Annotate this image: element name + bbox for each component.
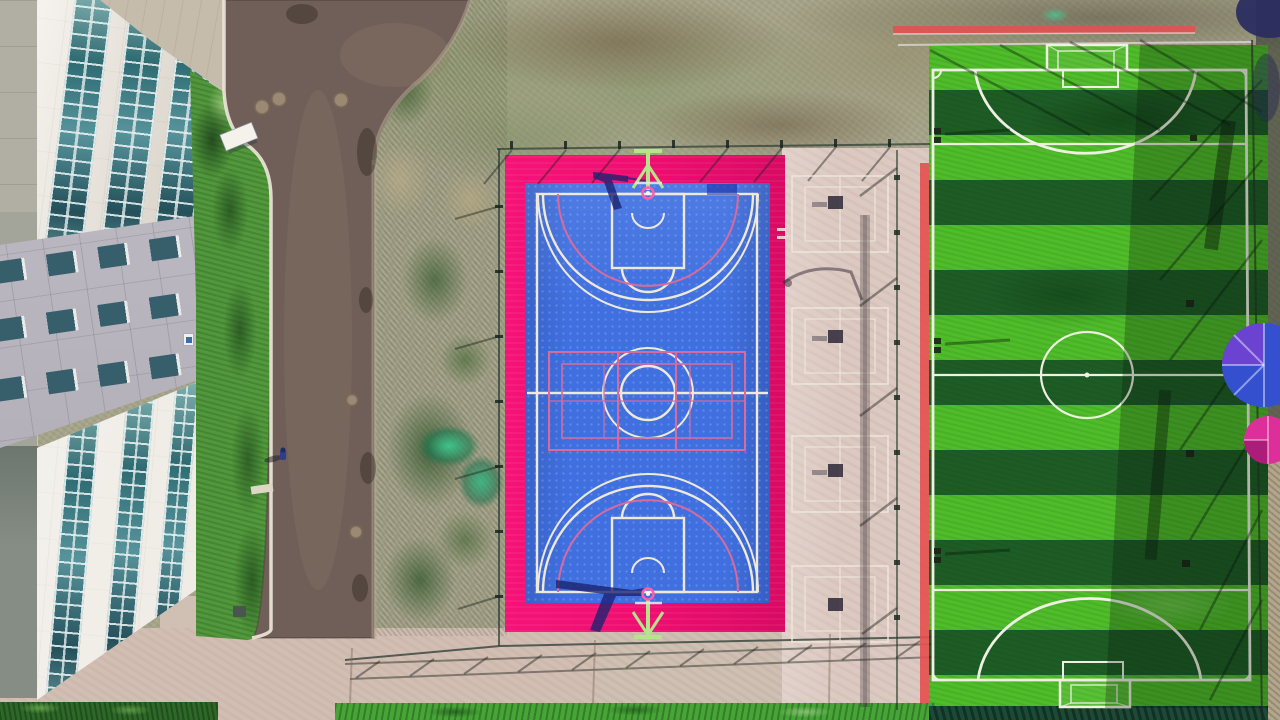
lamp-post-shadow <box>783 215 870 707</box>
fence-shadow-grid <box>345 641 935 679</box>
court-fence <box>345 139 935 679</box>
football-pitch <box>893 26 1268 720</box>
trash-bin <box>233 606 246 617</box>
aerial-photo-scene <box>0 0 1280 720</box>
court-equipment-mat <box>707 184 737 195</box>
red-strip-left <box>920 163 929 703</box>
scene-linework <box>0 0 1280 720</box>
red-track-strip-top <box>893 26 1195 33</box>
asphalt-road <box>220 0 470 638</box>
badminton-courts <box>792 176 888 642</box>
basketball-hoop-top <box>593 150 663 210</box>
basketball-hoop-bottom <box>556 580 663 638</box>
speaker-shadows <box>945 130 1010 554</box>
dark-canopy <box>1236 0 1280 38</box>
apron-tick-marks <box>777 228 786 239</box>
benches <box>812 196 843 611</box>
